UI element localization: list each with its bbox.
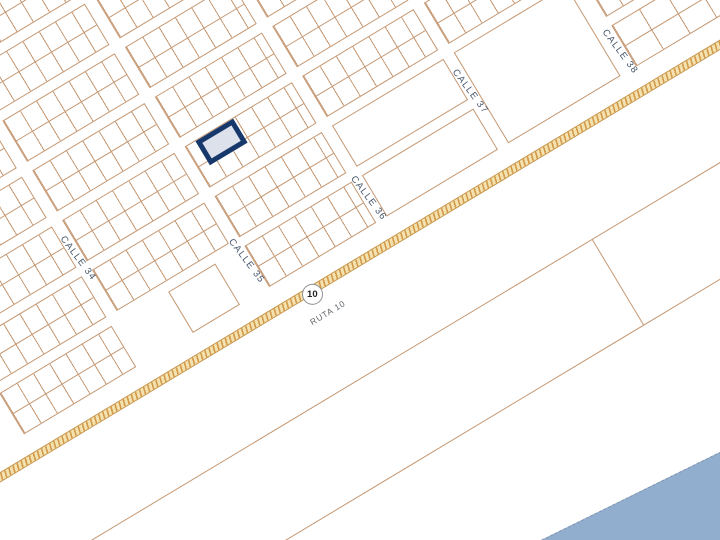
route-shield-number: 10: [307, 289, 318, 300]
parcel-boundary-line: [592, 239, 644, 325]
map-canvas[interactable]: CALLE 34 CALLE 35 CALLE 36 CALLE 37 CALL…: [0, 0, 720, 540]
empty-parcel: [168, 263, 240, 332]
